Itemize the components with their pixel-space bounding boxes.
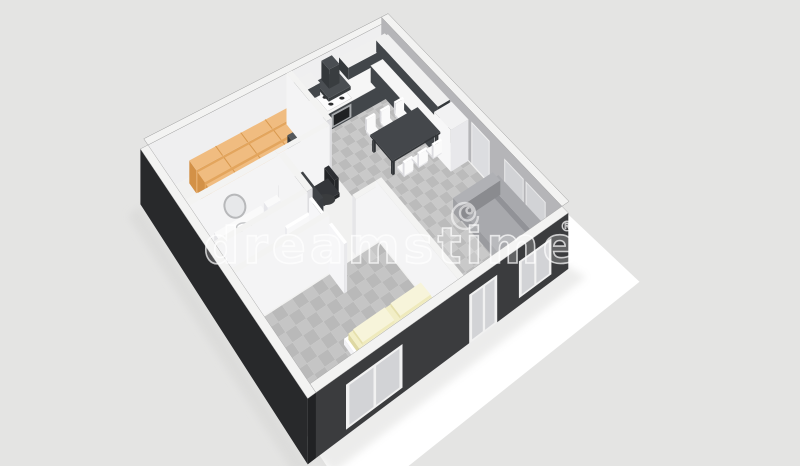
watermark-text: dreamstime [203, 217, 580, 275]
floor-plan-render: dreamstime ® [0, 0, 800, 466]
registered-mark: ® [560, 219, 574, 235]
stock-image-canvas: dreamstime ® [0, 0, 800, 466]
